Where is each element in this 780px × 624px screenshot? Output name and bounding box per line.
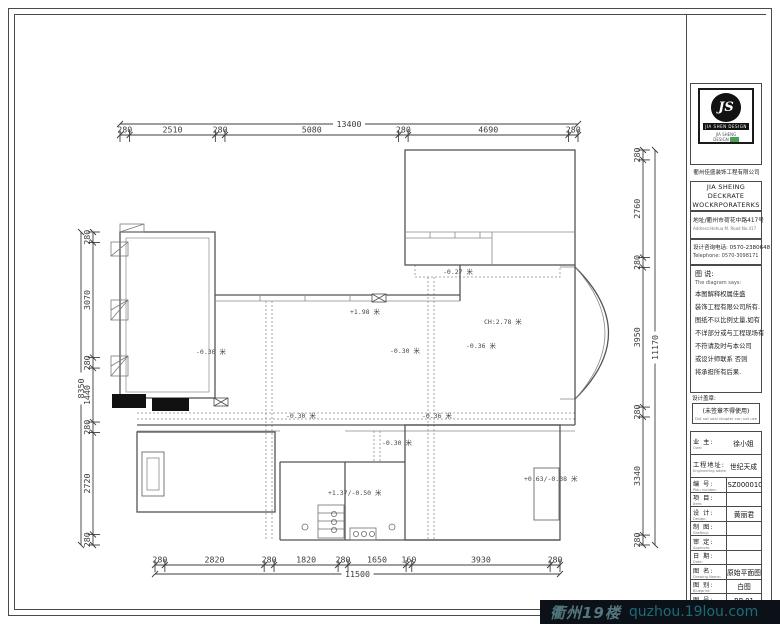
- structural-columns: [112, 394, 189, 411]
- title-row-label: 业 主:Own:: [691, 432, 726, 454]
- company-name-cn: 衢州佳盛装饰工程有限公司: [690, 168, 763, 181]
- svg-text:11170: 11170: [650, 335, 660, 360]
- svg-text:1650: 1650: [367, 555, 387, 565]
- svg-text:160: 160: [401, 555, 416, 565]
- title-row: 图 名:Drawing Name:原始平面图: [691, 564, 761, 579]
- title-row-label-cn: 设 计:: [693, 508, 726, 517]
- walls: [120, 150, 609, 540]
- svg-text:4690: 4690: [478, 125, 498, 135]
- seal-note-box: (未签章不得使用) Did not seal chapter can not u…: [692, 403, 760, 424]
- title-row-label-en: Drawing Name:: [693, 575, 726, 579]
- phone-en: Telephone: 0570-3098171: [693, 253, 759, 259]
- diagram-note-line: 图纸不以比例丈量,如有: [695, 314, 758, 327]
- floor-plan-drawing: 2802510280508028046902801340028028202801…: [0, 0, 780, 624]
- dimension-chain-left: 2803070280144028027202808350: [76, 229, 100, 548]
- title-row-value: [726, 536, 761, 550]
- title-row-value: JSZ000010: [726, 478, 761, 492]
- title-row-label-cn: 制 图:: [693, 522, 726, 531]
- address-box: 地址/衢州市荷花中路417号 Address:Hehua M. Road No.…: [690, 211, 762, 239]
- svg-text:280: 280: [152, 555, 167, 565]
- title-row-label: 日 期:Date:: [691, 551, 726, 565]
- title-row-label-en: Date:: [693, 560, 726, 564]
- svg-text:280: 280: [82, 355, 92, 370]
- title-row-label-cn: 项 目:: [693, 493, 726, 502]
- title-row-label-en: Engineering address:: [693, 469, 726, 473]
- watermark-url[interactable]: quzhou.19lou.com: [629, 604, 758, 620]
- phone-box: 设计咨询电话: 0570-2380648 Telephone: 0570-309…: [690, 239, 762, 265]
- title-row-label-cn: 图 别:: [693, 580, 726, 589]
- dimension-chain-right: 28027602803950280334028011170: [632, 147, 660, 548]
- company-logo-box: JS JIA SHEN DESIGN JIA SHENG DESIGN: [690, 83, 762, 165]
- svg-text:280: 280: [548, 555, 563, 565]
- title-row-label: 工程地址:Engineering address:: [691, 455, 726, 477]
- svg-text:280: 280: [632, 533, 642, 548]
- svg-text:5080: 5080: [302, 125, 322, 135]
- company-name-en-line2: WOCKRPORATERKS: [692, 201, 759, 210]
- title-row-label: 图 名:Drawing Name:: [691, 565, 726, 579]
- title-row-value: 黄丽君: [726, 507, 761, 521]
- title-row-label: 制 图:Drafting:: [691, 522, 726, 536]
- address-en: Address:Hehua M. Road No.417: [693, 226, 759, 231]
- company-name-en-line1: JIA SHEING DECKRATE: [691, 183, 761, 201]
- title-row-label: 审 定:Approval:: [691, 536, 726, 550]
- title-row-value: [726, 551, 761, 565]
- title-row-label-en: Item:: [693, 502, 726, 506]
- title-block: JS JIA SHEN DESIGN JIA SHENG DESIGN 衢州佳盛…: [686, 15, 766, 608]
- title-row-label-cn: 日 期:: [693, 551, 726, 560]
- svg-text:3930: 3930: [471, 555, 491, 565]
- svg-text:3950: 3950: [632, 327, 642, 347]
- stairs-and-fixtures: [302, 505, 395, 540]
- svg-text:280: 280: [632, 147, 642, 162]
- logo-subtext: JIA SHENG DESIGN: [713, 132, 738, 143]
- title-row-value: 原始平面图: [726, 565, 761, 579]
- svg-text:3070: 3070: [82, 290, 92, 310]
- seal-section: 设计盖章: (未签章不得使用) Did not seal chapter can…: [690, 393, 762, 433]
- title-row: 图 别:Blueprint:白图: [691, 579, 761, 594]
- svg-text:280: 280: [213, 125, 228, 135]
- svg-text:280: 280: [82, 420, 92, 435]
- title-rows: 业 主:Own:徐小姐工程地址:Engineering address:世纪天成…: [690, 431, 762, 608]
- title-row-label-en: Own:: [693, 446, 726, 450]
- dimension-chain-top: 28025102805080280469028013400: [117, 119, 581, 142]
- diagram-note-line: 将承担所有后果.: [695, 366, 758, 379]
- svg-text:2760: 2760: [632, 199, 642, 219]
- svg-text:280: 280: [396, 125, 411, 135]
- title-row-label-en: Approval:: [693, 546, 726, 550]
- svg-text:11500: 11500: [345, 569, 370, 579]
- cad-sheet: { "dims": { "top": {"total": "13400", "s…: [0, 0, 780, 624]
- title-row: 日 期:Date:: [691, 550, 761, 565]
- svg-text:2510: 2510: [162, 125, 182, 135]
- svg-text:1820: 1820: [296, 555, 316, 565]
- datum-dotted-lines: [137, 265, 575, 540]
- svg-text:2720: 2720: [82, 474, 92, 494]
- diagram-note-line: 或设计师联系 否则: [695, 353, 758, 366]
- title-row-label-en: Drafting:: [693, 531, 726, 535]
- svg-text:280: 280: [82, 230, 92, 245]
- diagram-notes-label-en: The diagram says:: [695, 280, 758, 286]
- svg-text:280: 280: [336, 555, 351, 565]
- title-row: 工程地址:Engineering address:世纪天成: [691, 454, 761, 477]
- diagram-notes-label: 图 说:: [695, 269, 758, 279]
- door-symbols: [214, 294, 386, 406]
- title-row: 编 号:Plan number:JSZ000010: [691, 477, 761, 492]
- title-row: 项 目:Item:: [691, 492, 761, 507]
- title-row-value: [726, 493, 761, 507]
- company-logo-icon: JS: [711, 93, 741, 122]
- diagram-note-line: 装饰工程有限公司所有.: [695, 301, 758, 314]
- title-row-label-cn: 图 名:: [693, 566, 726, 575]
- title-row-label: 图 别:Blueprint:: [691, 580, 726, 594]
- svg-text:280: 280: [566, 125, 581, 135]
- title-row-label-en: Plan number:: [693, 488, 726, 492]
- watermark-brand: 衢州19楼: [550, 602, 621, 623]
- svg-text:280: 280: [117, 125, 132, 135]
- seal-note: (未签章不得使用): [693, 406, 759, 415]
- title-row-label-cn: 审 定:: [693, 537, 726, 546]
- dimension-chains: 2802510280508028046902801340028028202801…: [76, 119, 660, 579]
- svg-text:3340: 3340: [632, 466, 642, 486]
- svg-text:13400: 13400: [337, 119, 362, 129]
- title-row-value: 徐小姐: [726, 432, 761, 454]
- logo-subtext-2: DESIGN: [713, 137, 728, 142]
- title-row: 审 定:Approval:: [691, 535, 761, 550]
- title-row-value: 世纪天成: [726, 455, 761, 477]
- title-row-label: 编 号:Plan number:: [691, 478, 726, 492]
- svg-text:8350: 8350: [76, 379, 86, 399]
- title-row-label-en: Design:: [693, 517, 726, 521]
- title-row: 业 主:Own:徐小姐: [691, 431, 761, 454]
- svg-text:2820: 2820: [205, 555, 225, 565]
- svg-text:280: 280: [262, 555, 277, 565]
- logo-band-text: JIA SHEN DESIGN: [703, 123, 749, 130]
- title-row: 制 图:Drafting:: [691, 521, 761, 536]
- title-row-label-cn: 工程地址:: [693, 460, 726, 469]
- title-row-value: [726, 522, 761, 536]
- company-name-en: JIA SHEING DECKRATE WOCKRPORATERKS: [690, 181, 762, 211]
- window-hatches: [111, 224, 144, 376]
- seal-note-en: Did not seal chapter can not use: [693, 416, 759, 421]
- diagram-note-line: 不符请及时与本公司: [695, 340, 758, 353]
- title-row-label: 项 目:Item:: [691, 493, 726, 507]
- diagram-note-line: 不详部分或与工程现场有: [695, 327, 758, 340]
- svg-text:280: 280: [82, 532, 92, 547]
- title-row-label-cn: 编 号:: [693, 479, 726, 488]
- green-accent-chip: [730, 137, 739, 142]
- diagram-notes-box: 图 说: The diagram says: 本图解释权属佳盛装饰工程有限公司所…: [690, 265, 762, 393]
- diagram-note-line: 本图解释权属佳盛: [695, 288, 758, 301]
- dimension-chain-bottom: 280282028018202801650160393028011500: [152, 555, 563, 580]
- title-row-label: 设 计:Design:: [691, 507, 726, 521]
- watermark-bar: 衢州19楼 quzhou.19lou.com: [540, 600, 780, 624]
- title-row-value: 白图: [726, 580, 761, 594]
- seal-label: 设计盖章:: [692, 394, 760, 402]
- title-row-label-en: Blueprint:: [693, 589, 726, 593]
- title-row-label-cn: 业 主:: [693, 437, 726, 446]
- logo-frame: JS JIA SHEN DESIGN JIA SHENG DESIGN: [698, 88, 754, 144]
- phone-cn: 设计咨询电话: 0570-2380648: [693, 243, 759, 251]
- svg-text:280: 280: [632, 255, 642, 270]
- diagram-notes-text: 本图解释权属佳盛装饰工程有限公司所有.图纸不以比例丈量,如有不详部分或与工程现场…: [695, 288, 758, 379]
- svg-text:280: 280: [632, 405, 642, 420]
- address-cn: 地址/衢州市荷花中路417号: [693, 215, 759, 224]
- title-row: 设 计:Design:黄丽君: [691, 506, 761, 521]
